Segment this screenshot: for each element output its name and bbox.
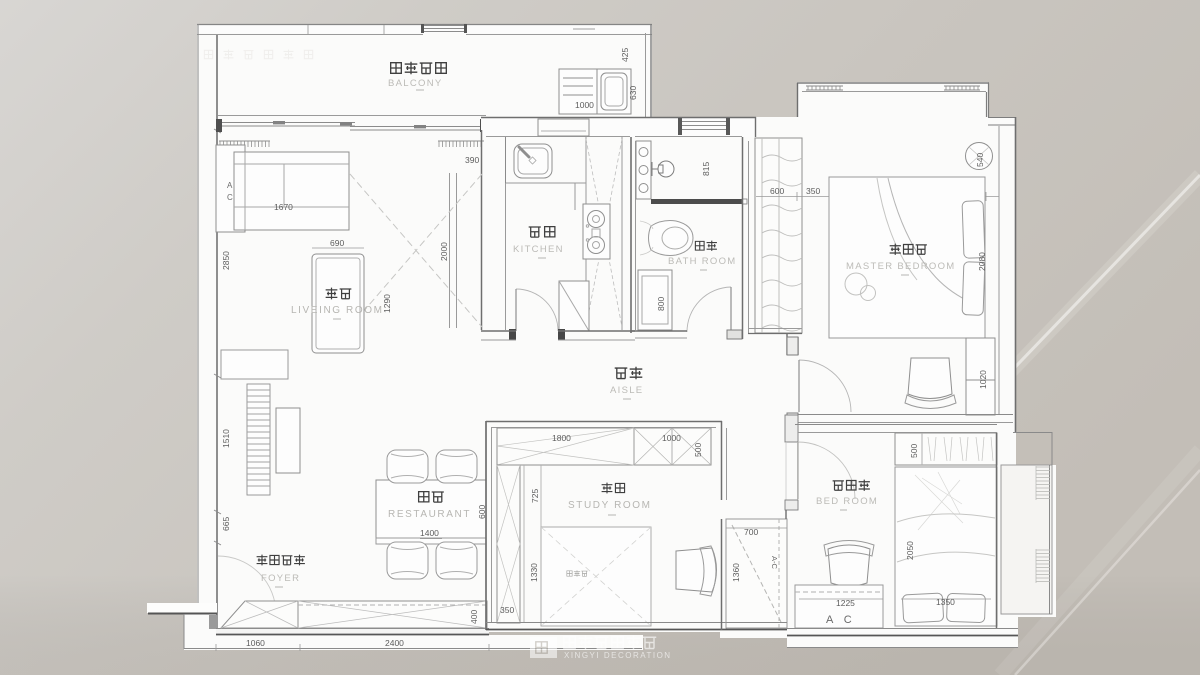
svg-text:KITCHEN: KITCHEN — [513, 244, 564, 255]
svg-text:1350: 1350 — [936, 597, 955, 607]
svg-text:1360: 1360 — [731, 563, 741, 582]
svg-text:MASTER BEDROOM: MASTER BEDROOM — [846, 261, 956, 272]
svg-text:RESTAURANT: RESTAURANT — [388, 509, 471, 520]
svg-text:BALCONY: BALCONY — [388, 78, 443, 89]
svg-text:1510: 1510 — [221, 429, 231, 448]
svg-text:C: C — [227, 193, 233, 202]
svg-text:1060: 1060 — [246, 638, 265, 648]
svg-text:400: 400 — [469, 610, 479, 624]
svg-text:425: 425 — [620, 48, 630, 62]
svg-text:390: 390 — [465, 155, 479, 165]
svg-text:A-C: A-C — [770, 556, 779, 570]
svg-text:725: 725 — [530, 489, 540, 503]
svg-text:AISLE: AISLE — [610, 385, 643, 396]
svg-text:1670: 1670 — [274, 202, 293, 212]
svg-text:2400: 2400 — [385, 638, 404, 648]
svg-text:1000: 1000 — [662, 433, 681, 443]
svg-text:2050: 2050 — [905, 541, 915, 560]
svg-text:A: A — [227, 181, 233, 190]
svg-text:XINGYI DECORATION: XINGYI DECORATION — [564, 651, 672, 660]
svg-text:700: 700 — [744, 527, 758, 537]
svg-text:500: 500 — [693, 443, 703, 457]
svg-text:2000: 2000 — [439, 242, 449, 261]
svg-text:350: 350 — [806, 186, 820, 196]
svg-text:600: 600 — [770, 186, 784, 196]
svg-text:A C: A C — [826, 614, 856, 626]
svg-text:800: 800 — [656, 297, 666, 311]
svg-text:STUDY ROOM: STUDY ROOM — [568, 500, 652, 511]
svg-text:1020: 1020 — [978, 370, 988, 389]
svg-text:1330: 1330 — [529, 563, 539, 582]
svg-text:BATH ROOM: BATH ROOM — [668, 256, 737, 267]
svg-text:815: 815 — [701, 162, 711, 176]
svg-text:1800: 1800 — [552, 433, 571, 443]
svg-text:1225: 1225 — [836, 598, 855, 608]
svg-text:2850: 2850 — [221, 251, 231, 270]
svg-text:690: 690 — [330, 238, 344, 248]
svg-text:FOYER: FOYER — [261, 573, 300, 584]
svg-text:540: 540 — [975, 153, 985, 167]
svg-text:1400: 1400 — [420, 528, 439, 538]
svg-text:630: 630 — [628, 86, 638, 100]
svg-text:500: 500 — [909, 444, 919, 458]
svg-text:2080: 2080 — [977, 252, 987, 271]
svg-text:350: 350 — [500, 605, 514, 615]
svg-text:BED ROOM: BED ROOM — [816, 496, 878, 507]
svg-text:LIVEING ROOM: LIVEING ROOM — [291, 305, 384, 316]
svg-text:1000: 1000 — [575, 100, 594, 110]
svg-text:665: 665 — [221, 517, 231, 531]
